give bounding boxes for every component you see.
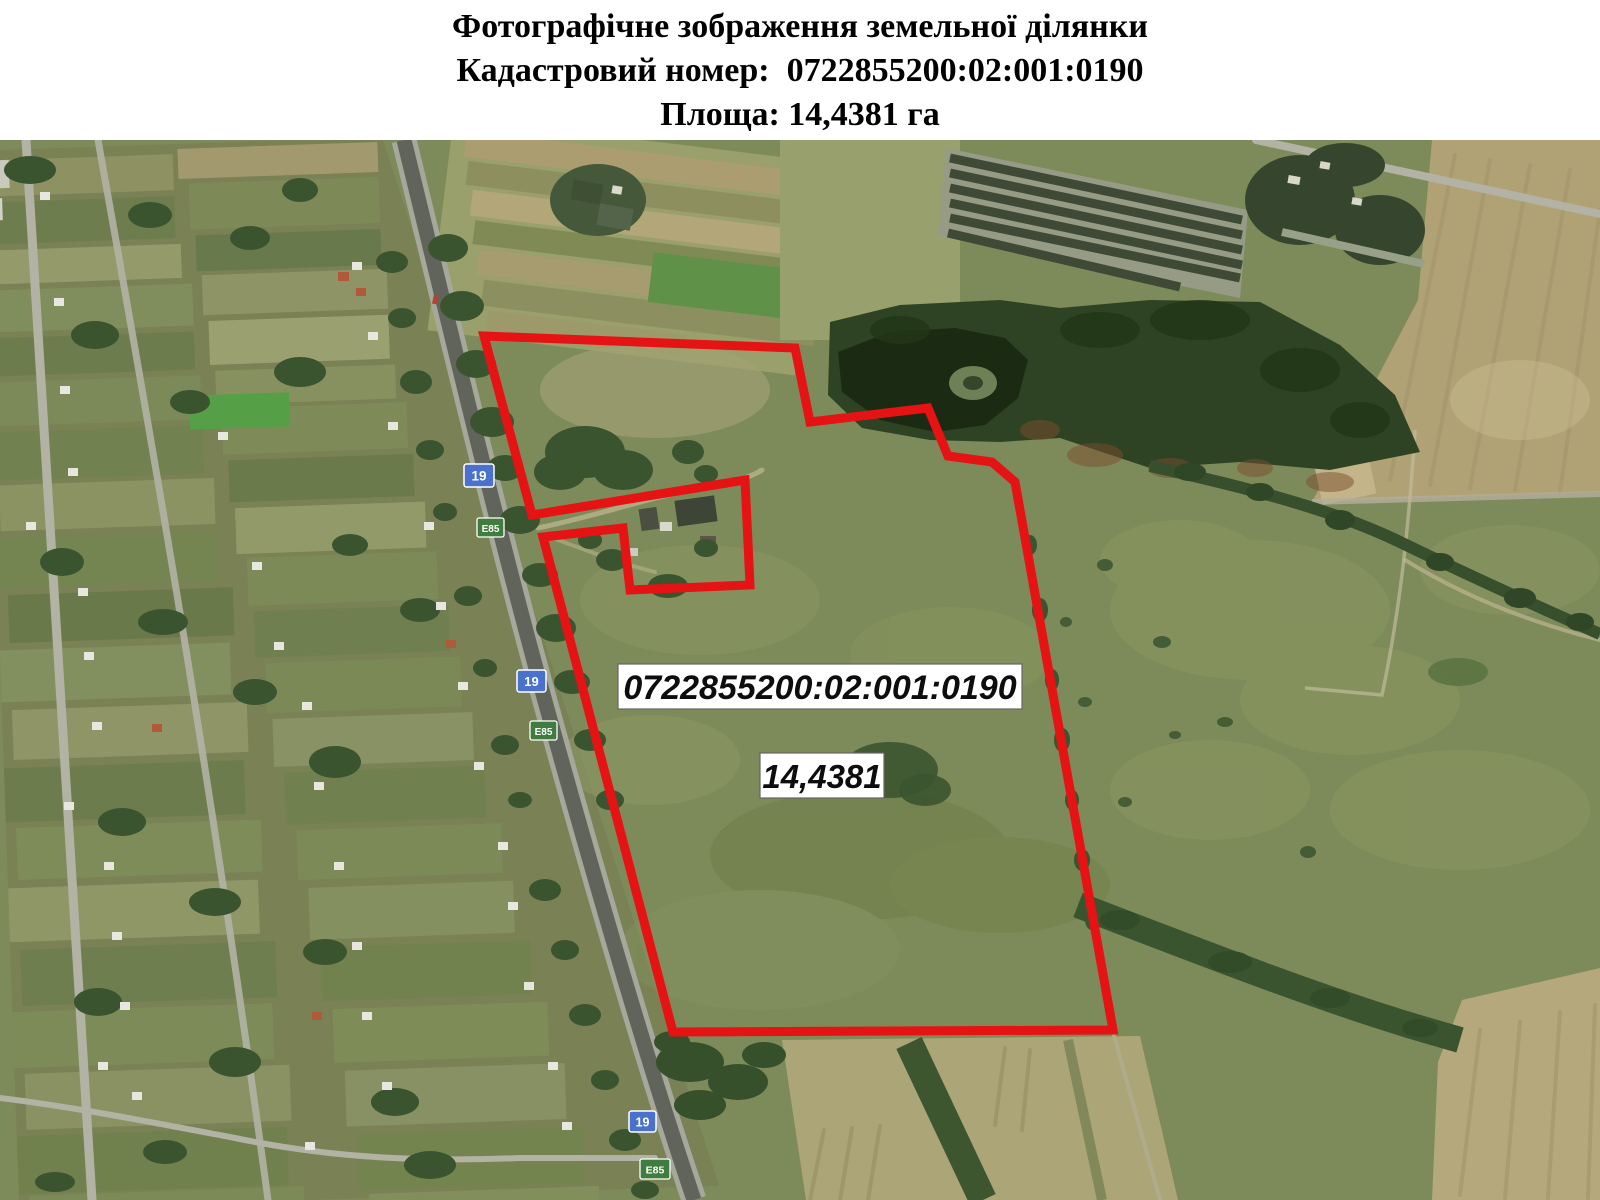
road-sign-m19-2-text: 19 <box>524 674 538 689</box>
satellite-map: 0722855200:02:001:0190 14,4381 19 E85 19… <box>0 140 1600 1200</box>
road-sign-e85-2: E85 <box>530 721 557 740</box>
title-block: Фотографічне зображення земельної ділянк… <box>0 0 1600 140</box>
road-sign-m19-1-text: 19 <box>471 469 486 484</box>
parcel-area-label: 14,4381 <box>760 753 884 798</box>
road-sign-m19-3: 19 <box>629 1111 656 1132</box>
title-line-3: Площа: 14,4381 га <box>0 93 1600 137</box>
parcel-number-text: 0722855200:02:001:0190 <box>623 669 1016 707</box>
parcel-number-label: 0722855200:02:001:0190 <box>618 664 1022 709</box>
road-sign-m19-3-text: 19 <box>636 1116 650 1130</box>
road-sign-e85-3: E85 <box>640 1159 670 1179</box>
road-sign-e85-2-text: E85 <box>535 727 553 738</box>
road-sign-m19-1: 19 <box>464 464 494 487</box>
road-sign-e85-1: E85 <box>477 518 504 537</box>
farm-compound-north <box>550 164 646 236</box>
road-sign-m19-2: 19 <box>517 670 546 692</box>
parcel-area-text: 14,4381 <box>762 758 881 795</box>
road-sign-e85-1-text: E85 <box>482 524 500 535</box>
road-sign-e85-3-text: E85 <box>646 1165 665 1177</box>
title-line-1: Фотографічне зображення земельної ділянк… <box>0 5 1600 49</box>
title-line-2: Кадастровий номер: 0722855200:02:001:019… <box>0 49 1600 93</box>
